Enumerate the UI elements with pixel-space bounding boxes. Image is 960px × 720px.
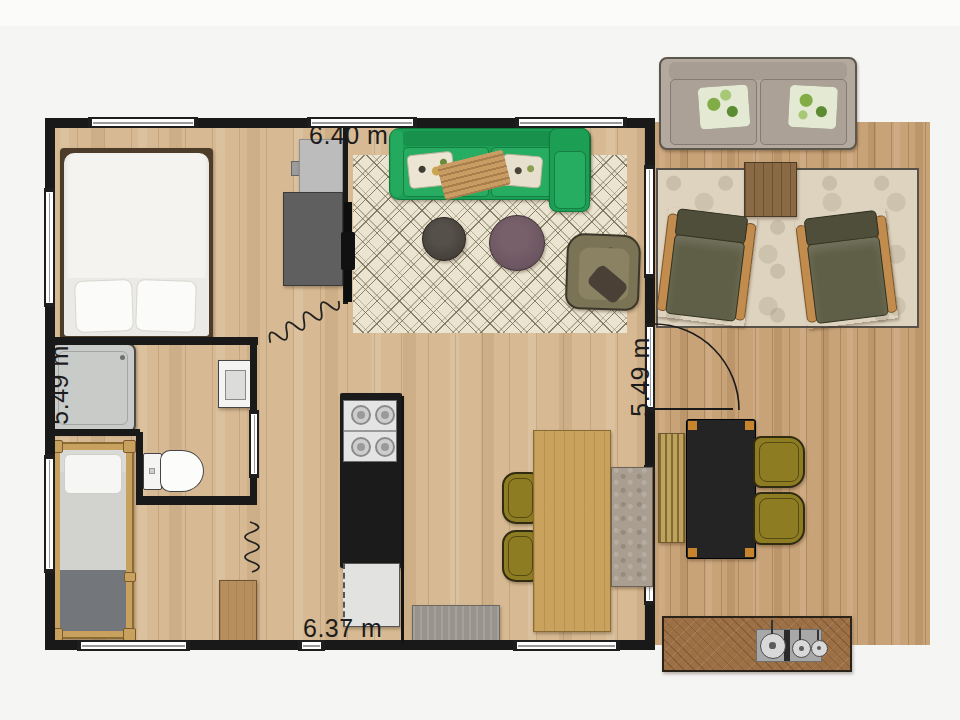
wall-single-bedroom-right — [136, 432, 143, 505]
deck-door-swing-arc — [652, 322, 742, 414]
green-sofa-chaise-cushion — [554, 151, 586, 209]
table-bracket-tr — [745, 421, 754, 430]
outdoor-kitchen-island — [662, 616, 852, 672]
kitchen-side-panel — [401, 396, 404, 644]
burner-1 — [351, 405, 371, 425]
outdoor-sofa — [659, 57, 857, 150]
toilet-bowl — [160, 450, 204, 492]
toilet — [143, 449, 206, 493]
coffee-table-large — [489, 215, 545, 271]
outdoor-coffee-table — [744, 162, 797, 217]
dimension-label-top: 6.40 m — [309, 121, 388, 150]
wardrobe — [219, 580, 257, 641]
patterned-armchair — [565, 233, 642, 312]
double-bed-pillow-right — [135, 279, 197, 333]
island-sink-mid — [792, 639, 811, 658]
stove — [343, 400, 397, 462]
single-bed — [52, 442, 134, 639]
single-bed-rail — [124, 572, 136, 582]
window-right-1 — [644, 165, 655, 278]
table-bracket-tl — [688, 421, 697, 430]
island-sink-large — [760, 633, 786, 659]
dining-table — [533, 430, 611, 632]
vanity — [218, 360, 253, 408]
island-sink-small — [811, 640, 828, 657]
window-top-3 — [515, 117, 627, 128]
armchair-right-seat — [807, 236, 889, 324]
doormat — [412, 605, 500, 643]
outdoor-bench — [658, 433, 685, 543]
single-bed-pillow — [64, 454, 122, 494]
double-bed-pillow-left — [74, 279, 134, 333]
single-bed-blanket — [60, 570, 126, 631]
dimension-label-left: 5.49 m — [45, 329, 71, 441]
outdoor-sofa-pillow-2 — [788, 85, 838, 129]
burner-3 — [351, 437, 371, 457]
island-faucet-2 — [799, 628, 801, 640]
table-bracket-bl — [688, 548, 697, 557]
kitchen-counter — [340, 393, 402, 568]
burner-2 — [375, 405, 395, 425]
green-sofa-chaise — [549, 128, 590, 212]
dimension-label-right: 5.49 m — [626, 321, 652, 433]
floorplan-canvas: 6.40 m 5.49 m 5.49 m 6.37 m — [0, 0, 960, 720]
outdoor-armchair-left — [656, 207, 758, 327]
page-top-band — [0, 0, 960, 26]
green-sofa-arm-left — [391, 130, 403, 197]
window-left-2 — [44, 455, 55, 573]
island-faucet-1 — [771, 620, 773, 634]
coffee-table-small — [422, 217, 466, 261]
media-desk — [283, 192, 343, 286]
bathroom-pocket-door — [249, 410, 259, 478]
stove-divider — [344, 430, 396, 432]
window-bottom-3 — [513, 640, 620, 651]
single-bed-post-tr — [123, 440, 136, 453]
toilet-button — [149, 468, 155, 474]
armchair-left-seat — [665, 234, 745, 322]
window-top-1 — [88, 117, 198, 128]
burner-4 — [375, 437, 395, 457]
island-faucet-3 — [817, 630, 819, 640]
window-left-1 — [44, 188, 55, 307]
vanity-basin — [225, 370, 246, 400]
shower-drain — [120, 355, 125, 360]
outdoor-sofa-back — [669, 62, 847, 80]
double-bed-duvet — [64, 153, 209, 295]
table-bracket-br — [745, 548, 754, 557]
opening-squiggle-icon — [242, 520, 262, 576]
tv-bracket — [341, 232, 355, 270]
wall-bathroom-bottom — [136, 496, 257, 505]
wall-bathroom-top — [50, 337, 258, 345]
double-bed — [60, 148, 213, 340]
dimension-label-bottom: 6.37 m — [303, 614, 382, 643]
dining-bench — [611, 467, 653, 587]
outdoor-chair-1 — [753, 436, 805, 488]
wall-bathroom-right-upper — [250, 345, 257, 412]
outdoor-armchair-right — [795, 209, 899, 329]
single-bedroom-opening — [242, 520, 262, 576]
outdoor-chair-2 — [753, 492, 805, 545]
outdoor-sofa-pillow-1 — [698, 84, 751, 129]
outdoor-dining-table — [686, 419, 756, 559]
window-bottom-1 — [77, 640, 190, 651]
